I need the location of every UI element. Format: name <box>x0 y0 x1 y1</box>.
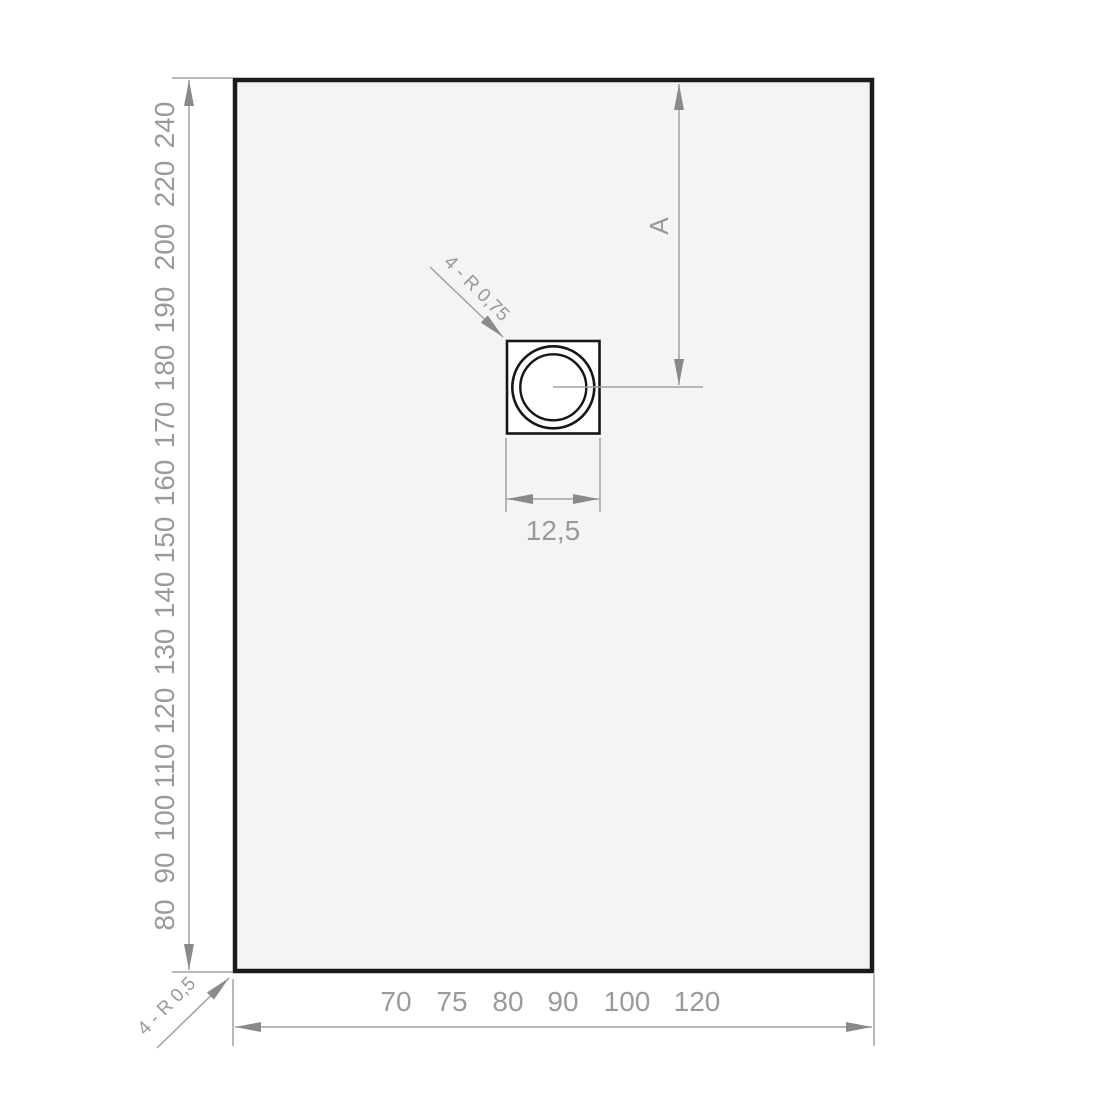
width-label: 90 <box>547 986 578 1017</box>
length-label: 220 <box>149 161 180 208</box>
length-label: 110 <box>149 744 180 789</box>
length-label: 100 <box>149 795 180 842</box>
length-label: 160 <box>149 460 180 507</box>
center-distance-label: A <box>644 217 674 235</box>
length-label: 130 <box>149 629 180 676</box>
length-label: 240 <box>149 102 180 149</box>
length-label: 90 <box>149 852 180 883</box>
tray-radius-label: 4 - R 0,5 <box>134 973 200 1039</box>
shower-tray-dimension-drawing: 240 220 200 190 180 170 160 150 140 130 … <box>0 0 1100 1100</box>
drain-width-label: 12,5 <box>526 515 581 546</box>
length-label: 80 <box>149 899 180 930</box>
length-label: 190 <box>149 287 180 334</box>
length-label: 180 <box>149 345 180 392</box>
width-labels: 70 75 80 90 100 120 <box>380 986 720 1017</box>
length-labels: 240 220 200 190 180 170 160 150 140 130 … <box>149 102 180 931</box>
width-label: 100 <box>604 986 651 1017</box>
width-label: 75 <box>436 986 467 1017</box>
technical-drawing-canvas: 240 220 200 190 180 170 160 150 140 130 … <box>0 0 1100 1100</box>
width-label: 120 <box>674 986 721 1017</box>
length-label: 200 <box>149 224 180 271</box>
width-label: 70 <box>380 986 411 1017</box>
width-label: 80 <box>492 986 523 1017</box>
length-label: 170 <box>149 402 180 449</box>
length-label: 120 <box>149 688 180 735</box>
length-label: 140 <box>149 572 180 619</box>
length-label: 150 <box>149 517 180 564</box>
